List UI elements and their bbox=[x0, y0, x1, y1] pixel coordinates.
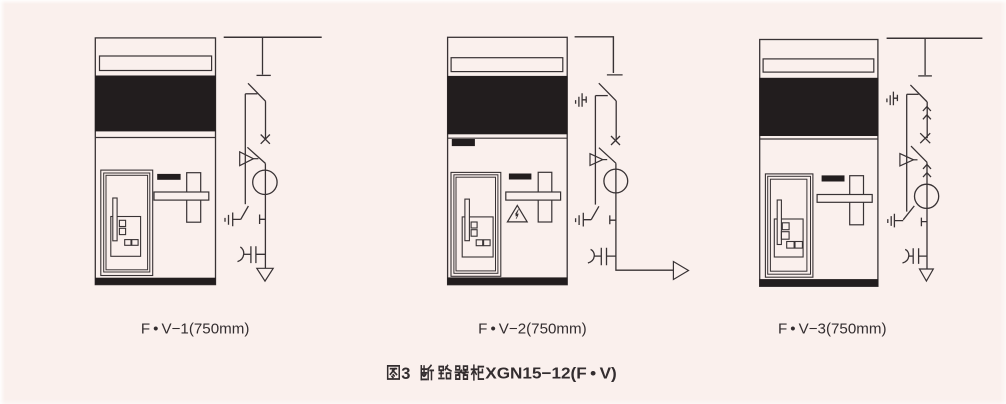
svg-text:F • V−2(750mm): F • V−2(750mm) bbox=[478, 321, 587, 338]
svg-text:3: 3 bbox=[401, 365, 410, 383]
svg-text:F • V−3(750mm): F • V−3(750mm) bbox=[778, 321, 887, 338]
svg-text:F • V−1(750mm): F • V−1(750mm) bbox=[141, 321, 250, 338]
svg-text:XGN15−12(F • V): XGN15−12(F • V) bbox=[485, 365, 616, 382]
